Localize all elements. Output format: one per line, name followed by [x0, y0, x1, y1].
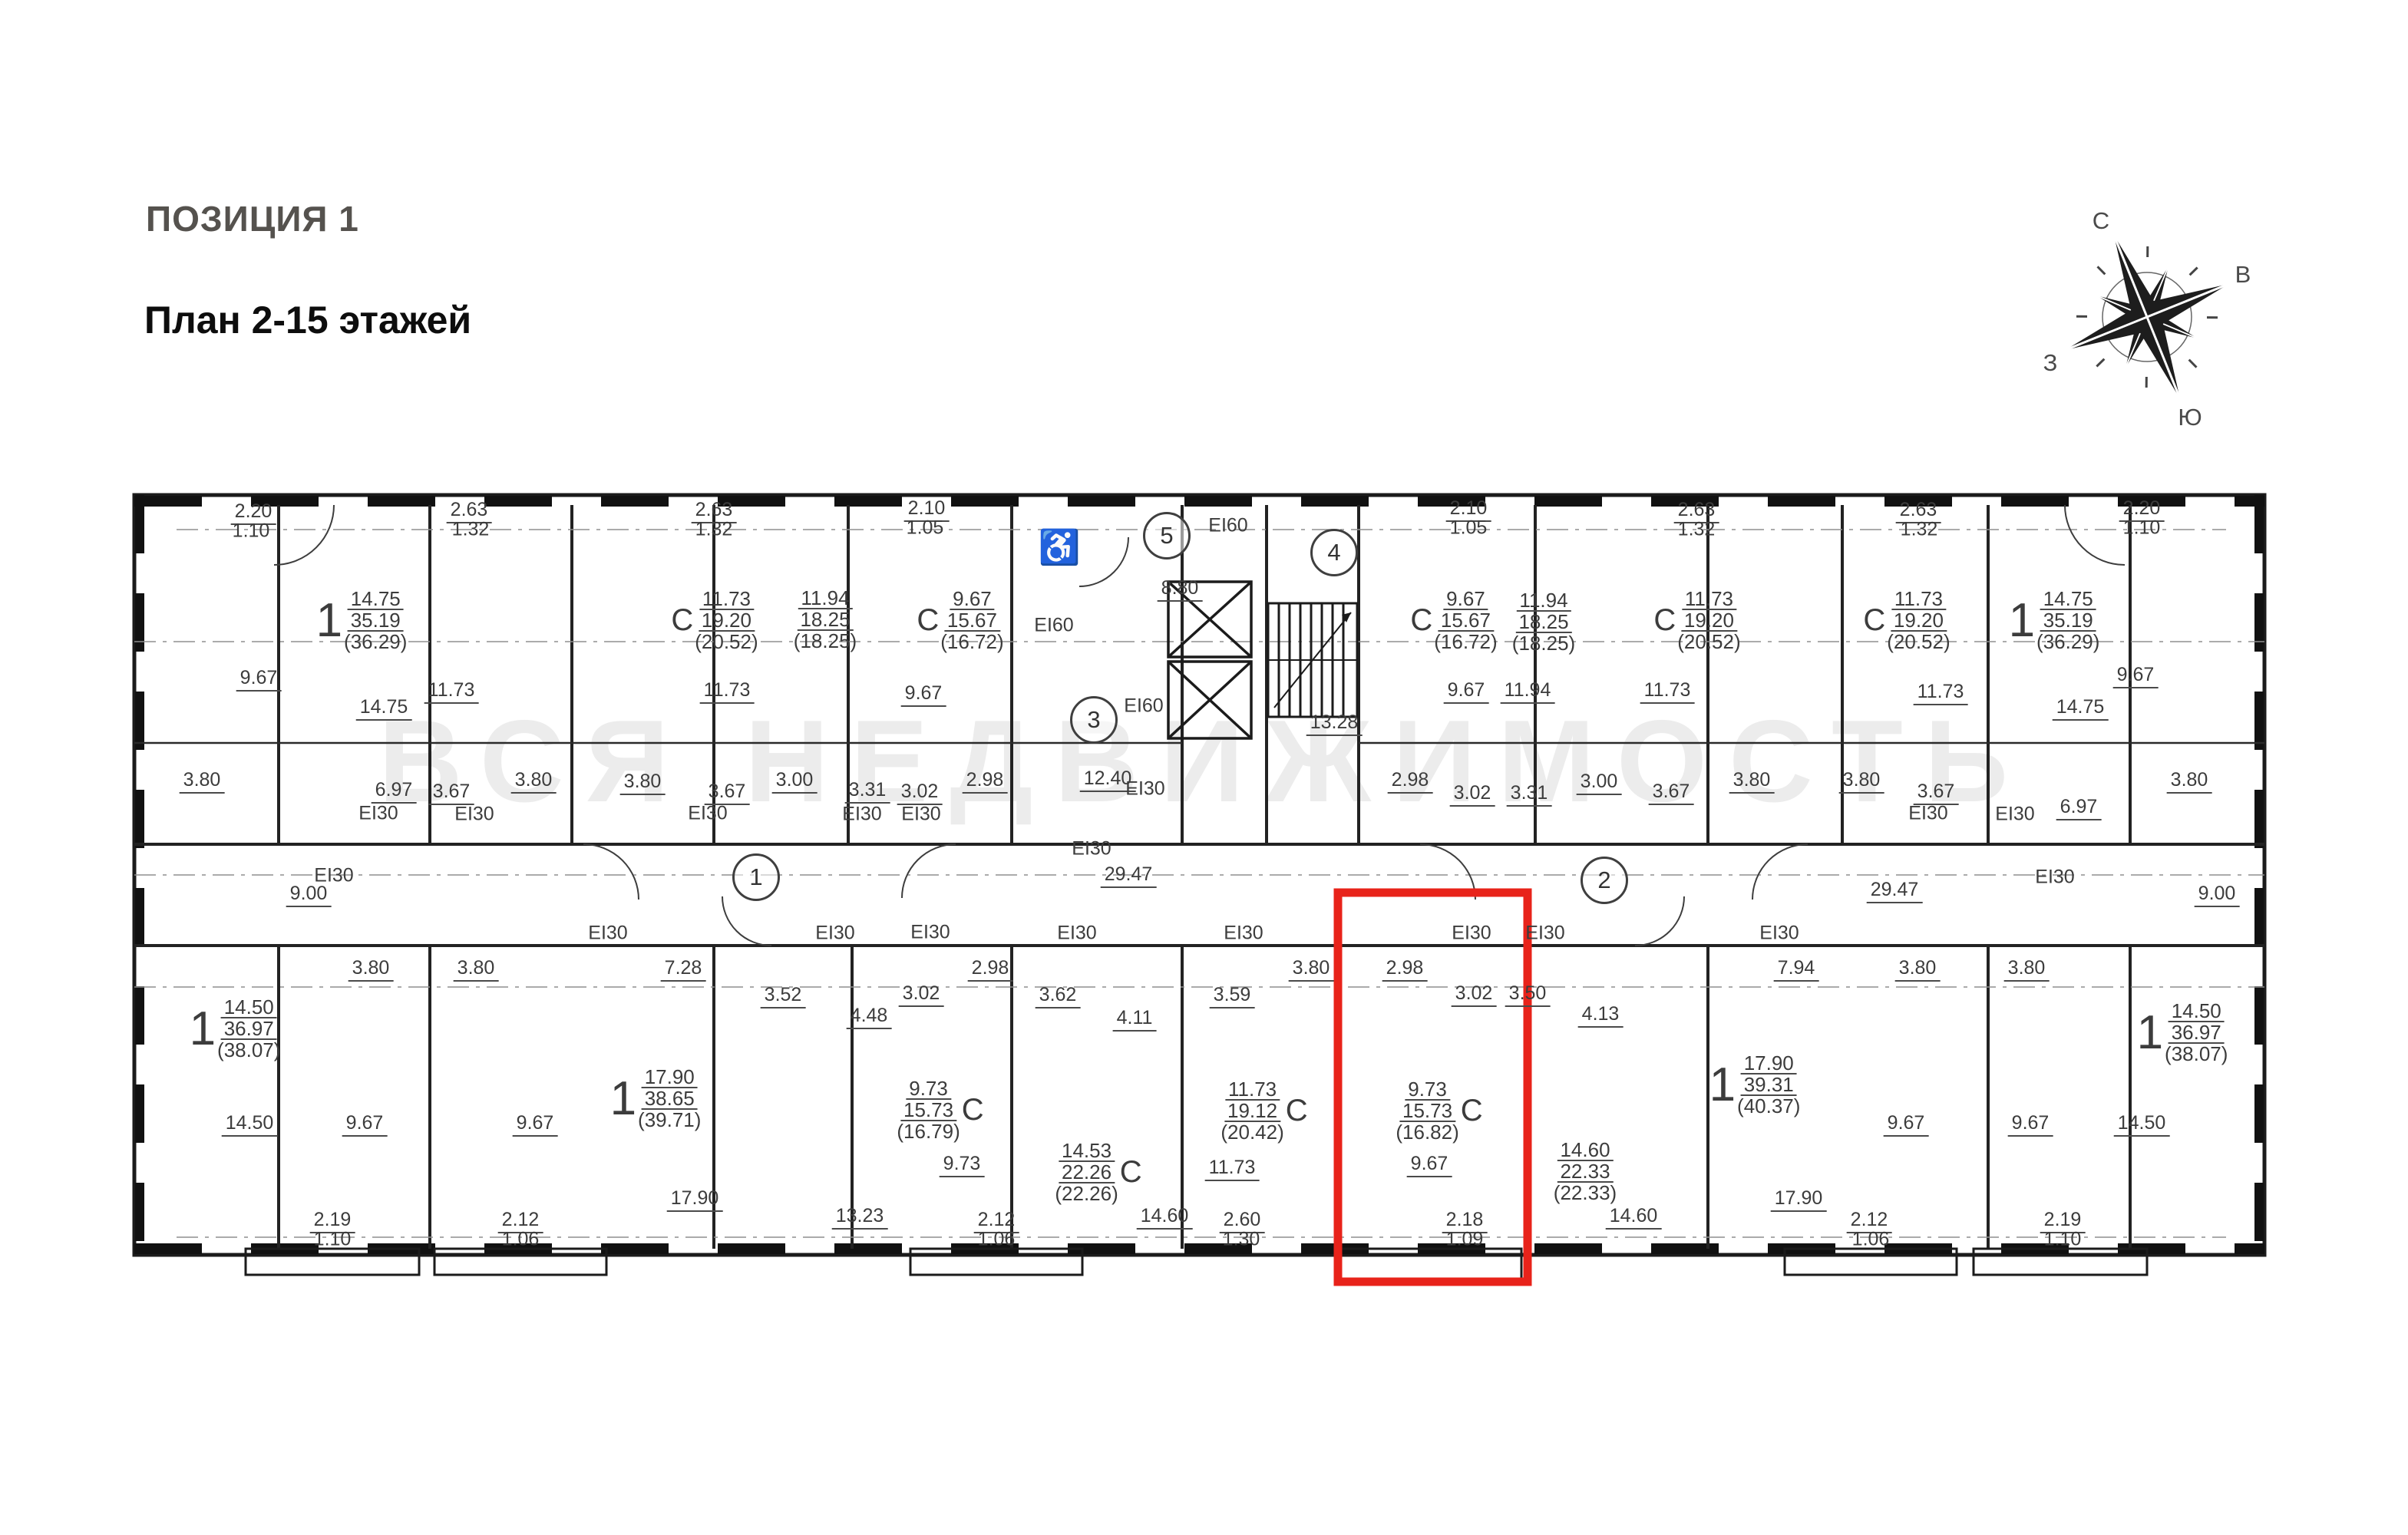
dimension-label: 1.05 [907, 517, 944, 540]
fire-rating-label: EI30 [314, 865, 353, 887]
apartment-area-label: 114.5036.97(38.07) [188, 997, 281, 1060]
apartment-area-label: 114.7535.19(36.29) [315, 589, 408, 652]
dimension-label: 1.32 [1678, 519, 1716, 541]
dimension-label: 11.73 [1205, 1157, 1260, 1181]
dimension-label: 14.75 [356, 696, 412, 721]
dimension-label: 3.00 [1577, 771, 1622, 795]
dimension-label: 8.80 [1158, 577, 1203, 602]
fire-rating-label: EI30 [1057, 923, 1096, 945]
fire-rating-label: EI30 [1452, 923, 1491, 945]
dimension-label: 9.67 [901, 682, 946, 707]
dimension-label: 9.67 [1884, 1112, 1929, 1137]
dimension-label: 1.05 [1450, 517, 1488, 540]
dimension-label: 9.67 [342, 1112, 388, 1137]
apartment-area-lines: 14.5036.97(38.07) [2165, 1001, 2228, 1064]
apartment-area-label: 9.7315.73(16.79)С [897, 1078, 985, 1141]
apartment-area-label: 11.9418.25(18.25) [1512, 590, 1575, 653]
dimension-label: 2.98 [1388, 769, 1433, 794]
dimension-label: 3.80 [348, 957, 394, 982]
dimension-label: 3.80 [2004, 957, 2050, 982]
dimension-label: 3.80 [620, 771, 666, 795]
unit-number-badge: 1 [732, 853, 780, 901]
apartment-area-lines: 17.9039.31(40.37) [1737, 1053, 1800, 1116]
fire-rating-label: EI30 [688, 803, 727, 825]
dimension-label: 1.09 [1446, 1229, 1484, 1251]
dimension-label: 2.98 [963, 769, 1008, 794]
apartment-area-label: С11.7319.20(20.52) [669, 589, 758, 652]
dimension-label: 13.28 [1306, 711, 1363, 736]
dimension-label: 2.98 [968, 957, 1013, 982]
dimension-label: 3.80 [454, 957, 499, 982]
fire-rating-label: EI30 [1525, 923, 1564, 945]
fire-rating-label: EI30 [2035, 867, 2074, 889]
dimension-label: 29.47 [1867, 879, 1923, 903]
fire-rating-label: EI30 [588, 923, 627, 945]
apartment-area-label: 117.9038.65(39.71) [609, 1067, 702, 1130]
apartment-area-label: 9.7315.73(16.82)С [1396, 1079, 1484, 1142]
fire-rating-label: EI30 [358, 803, 398, 825]
dimension-label: 3.67 [429, 781, 474, 805]
apartment-type-marker: С [1653, 603, 1676, 638]
dimension-label: 11.73 [1640, 679, 1695, 704]
apartment-area-lines: 9.7315.73(16.82) [1396, 1079, 1458, 1142]
dimension-label: 11.73 [1914, 681, 1968, 705]
fire-rating-label: EI30 [454, 804, 494, 826]
unit-number-badge: 2 [1581, 857, 1628, 904]
apartment-area-label: С11.7319.20(20.52) [1861, 589, 1950, 652]
fire-rating-label: EI60 [1034, 615, 1073, 637]
apartment-area-lines: 11.9418.25(18.25) [1512, 590, 1575, 653]
apartment-area-lines: 11.7319.20(20.52) [695, 589, 758, 652]
plan-labels-layer: 2.201.102.631.322.631.322.101.052.101.05… [0, 0, 2408, 1535]
dimension-label: 3.62 [1036, 984, 1081, 1008]
apartment-type-marker: 1 [190, 1002, 216, 1056]
apartment-area-lines: 9.6715.67(16.72) [1434, 589, 1497, 652]
dimension-label: 9.67 [513, 1112, 558, 1137]
apartment-type-marker: 1 [610, 1071, 636, 1126]
dimension-label: 3.31 [1507, 782, 1552, 807]
apartment-type-marker: С [917, 603, 939, 638]
apartment-type-marker: С [962, 1093, 984, 1127]
dimension-label: 7.28 [661, 957, 706, 982]
unit-number-badge: 4 [1310, 529, 1358, 576]
dimension-label: 11.73 [700, 679, 755, 704]
fire-rating-label: EI30 [1759, 923, 1799, 945]
dimension-label: 14.60 [1606, 1205, 1662, 1230]
dimension-label: 1.32 [1901, 519, 1938, 541]
dimension-label: 9.67 [236, 667, 282, 692]
apartment-type-marker: 1 [1709, 1058, 1736, 1112]
dimension-label: 9.67 [2008, 1112, 2053, 1137]
dimension-label: 9.67 [1407, 1153, 1452, 1177]
dimension-label: 1.32 [695, 519, 733, 541]
dimension-label: 3.67 [705, 781, 750, 805]
fire-rating-label: EI30 [910, 922, 950, 944]
apartment-type-marker: С [1286, 1094, 1308, 1128]
apartment-area-lines: 17.9038.65(39.71) [638, 1067, 701, 1130]
dimension-label: 4.13 [1578, 1003, 1624, 1028]
fire-rating-label: EI30 [1908, 803, 1947, 825]
fire-rating-label: EI30 [1224, 923, 1263, 945]
apartment-area-label: С9.6715.67(16.72) [1409, 589, 1497, 652]
dimension-label: 17.90 [667, 1187, 723, 1212]
apartment-area-lines: 9.6715.67(16.72) [940, 589, 1003, 652]
apartment-type-marker: С [1120, 1155, 1142, 1190]
compass-direction-letter: Ю [2178, 404, 2202, 431]
dimension-label: 11.94 [1501, 679, 1555, 704]
dimension-label: 3.80 [1289, 957, 1334, 982]
dimension-label: 7.94 [1774, 957, 1819, 982]
compass-direction-letter: З [2043, 349, 2058, 377]
apartment-type-marker: 1 [2137, 1005, 2163, 1060]
compass-direction-letter: С [2093, 207, 2109, 235]
wheelchair-icon: ♿ [1039, 527, 1081, 567]
unit-number-badge: 5 [1143, 512, 1191, 560]
apartment-area-label: 11.7319.12(20.42)С [1221, 1079, 1309, 1142]
fire-rating-label: EI30 [815, 923, 854, 945]
dimension-label: 3.80 [2167, 769, 2212, 794]
dimension-label: 1.06 [978, 1229, 1016, 1251]
apartment-area-lines: 11.7319.20(20.52) [1677, 589, 1740, 652]
apartment-type-marker: 1 [2009, 593, 2035, 648]
dimension-label: 1.32 [452, 519, 490, 541]
dimension-label: 3.00 [772, 769, 818, 794]
dimension-label: 14.50 [222, 1112, 278, 1137]
dimension-label: 3.80 [511, 769, 557, 794]
dimension-label: 3.80 [1839, 769, 1884, 794]
dimension-label: 3.59 [1210, 984, 1255, 1008]
apartment-type-marker: С [1863, 603, 1885, 638]
dimension-label: 17.90 [1771, 1187, 1827, 1212]
dimension-label: 4.11 [1113, 1007, 1157, 1032]
compass-direction-letter: В [2235, 261, 2251, 289]
dimension-label: 6.97 [372, 779, 417, 804]
apartment-area-label: 114.5036.97(38.07) [2135, 1001, 2228, 1064]
apartment-area-label: 11.9418.25(18.25) [794, 588, 857, 651]
dimension-label: 1.06 [1852, 1229, 1890, 1251]
apartment-area-label: 114.7535.19(36.29) [2007, 589, 2100, 652]
apartment-type-marker: С [671, 603, 693, 638]
apartment-area-lines: 14.7535.19(36.29) [344, 589, 407, 652]
apartment-area-lines: 14.5036.97(38.07) [217, 997, 280, 1060]
apartment-type-marker: 1 [316, 593, 342, 648]
apartment-type-marker: С [1461, 1094, 1483, 1128]
dimension-label: 1.10 [2123, 517, 2161, 540]
dimension-label: 29.47 [1101, 863, 1157, 888]
dimension-label: 3.67 [1914, 781, 1959, 805]
dimension-label: 3.80 [180, 769, 225, 794]
dimension-label: 3.67 [1649, 781, 1694, 805]
dimension-label: 1.30 [1223, 1229, 1260, 1251]
dimension-label: 3.50 [1505, 982, 1551, 1007]
dimension-label: 14.60 [1137, 1205, 1193, 1230]
apartment-area-label: С11.7319.20(20.52) [1652, 589, 1740, 652]
dimension-label: 3.02 [1452, 982, 1497, 1007]
fire-rating-label: EI30 [842, 804, 881, 826]
dimension-label: 3.02 [897, 781, 943, 805]
dimension-label: 9.00 [2195, 883, 2240, 907]
dimension-label: 6.97 [2056, 796, 2102, 820]
apartment-area-lines: 11.7319.20(20.52) [1887, 589, 1950, 652]
fire-rating-label: EI30 [1995, 804, 2034, 826]
fire-rating-label: EI60 [1124, 695, 1163, 718]
apartment-area-label: С9.6715.67(16.72) [915, 589, 1003, 652]
dimension-label: 14.50 [2114, 1112, 2170, 1137]
dimension-label: 4.48 [847, 1005, 892, 1029]
dimension-label: 3.80 [1895, 957, 1941, 982]
apartment-area-label: 117.9039.31(40.37) [1708, 1053, 1801, 1116]
dimension-label: 13.23 [832, 1205, 888, 1230]
dimension-label: 3.52 [761, 984, 806, 1008]
floor-plan-page: ПОЗИЦИЯ 1 План 2-15 этажей ВСЯ НЕДВИЖИМО… [0, 0, 2408, 1535]
apartment-area-label: 14.6022.33(22.33) [1554, 1140, 1617, 1203]
apartment-type-marker: С [1410, 603, 1432, 638]
fire-rating-label: EI30 [1125, 778, 1164, 801]
dimension-label: 3.02 [1450, 782, 1495, 807]
dimension-label: 3.80 [1729, 769, 1775, 794]
dimension-label: 2.98 [1382, 957, 1428, 982]
dimension-label: 9.73 [940, 1153, 985, 1177]
apartment-area-label: 14.5322.26(22.26)С [1055, 1141, 1143, 1203]
dimension-label: 11.73 [424, 679, 479, 704]
dimension-label: 9.67 [2113, 664, 2159, 688]
dimension-label: 14.75 [2053, 696, 2109, 721]
dimension-label: 1.10 [2044, 1229, 2082, 1251]
fire-rating-label: EI60 [1208, 515, 1247, 537]
dimension-label: 3.31 [845, 779, 890, 804]
dimension-label: 9.67 [1444, 679, 1489, 704]
dimension-label: 1.10 [314, 1229, 352, 1251]
dimension-label: 1.06 [502, 1229, 540, 1251]
dimension-label: 1.10 [233, 520, 270, 543]
apartment-area-lines: 9.7315.73(16.79) [897, 1078, 960, 1141]
fire-rating-label: EI30 [1072, 838, 1111, 860]
apartment-area-lines: 14.5322.26(22.26) [1055, 1141, 1118, 1203]
apartment-area-lines: 11.7319.12(20.42) [1221, 1079, 1283, 1142]
apartment-area-lines: 14.6022.33(22.33) [1554, 1140, 1617, 1203]
apartment-area-lines: 11.9418.25(18.25) [794, 588, 857, 651]
fire-rating-label: EI30 [901, 804, 940, 826]
dimension-label: 3.02 [899, 982, 944, 1007]
apartment-area-lines: 14.7535.19(36.29) [2036, 589, 2099, 652]
unit-number-badge: 3 [1070, 696, 1118, 744]
